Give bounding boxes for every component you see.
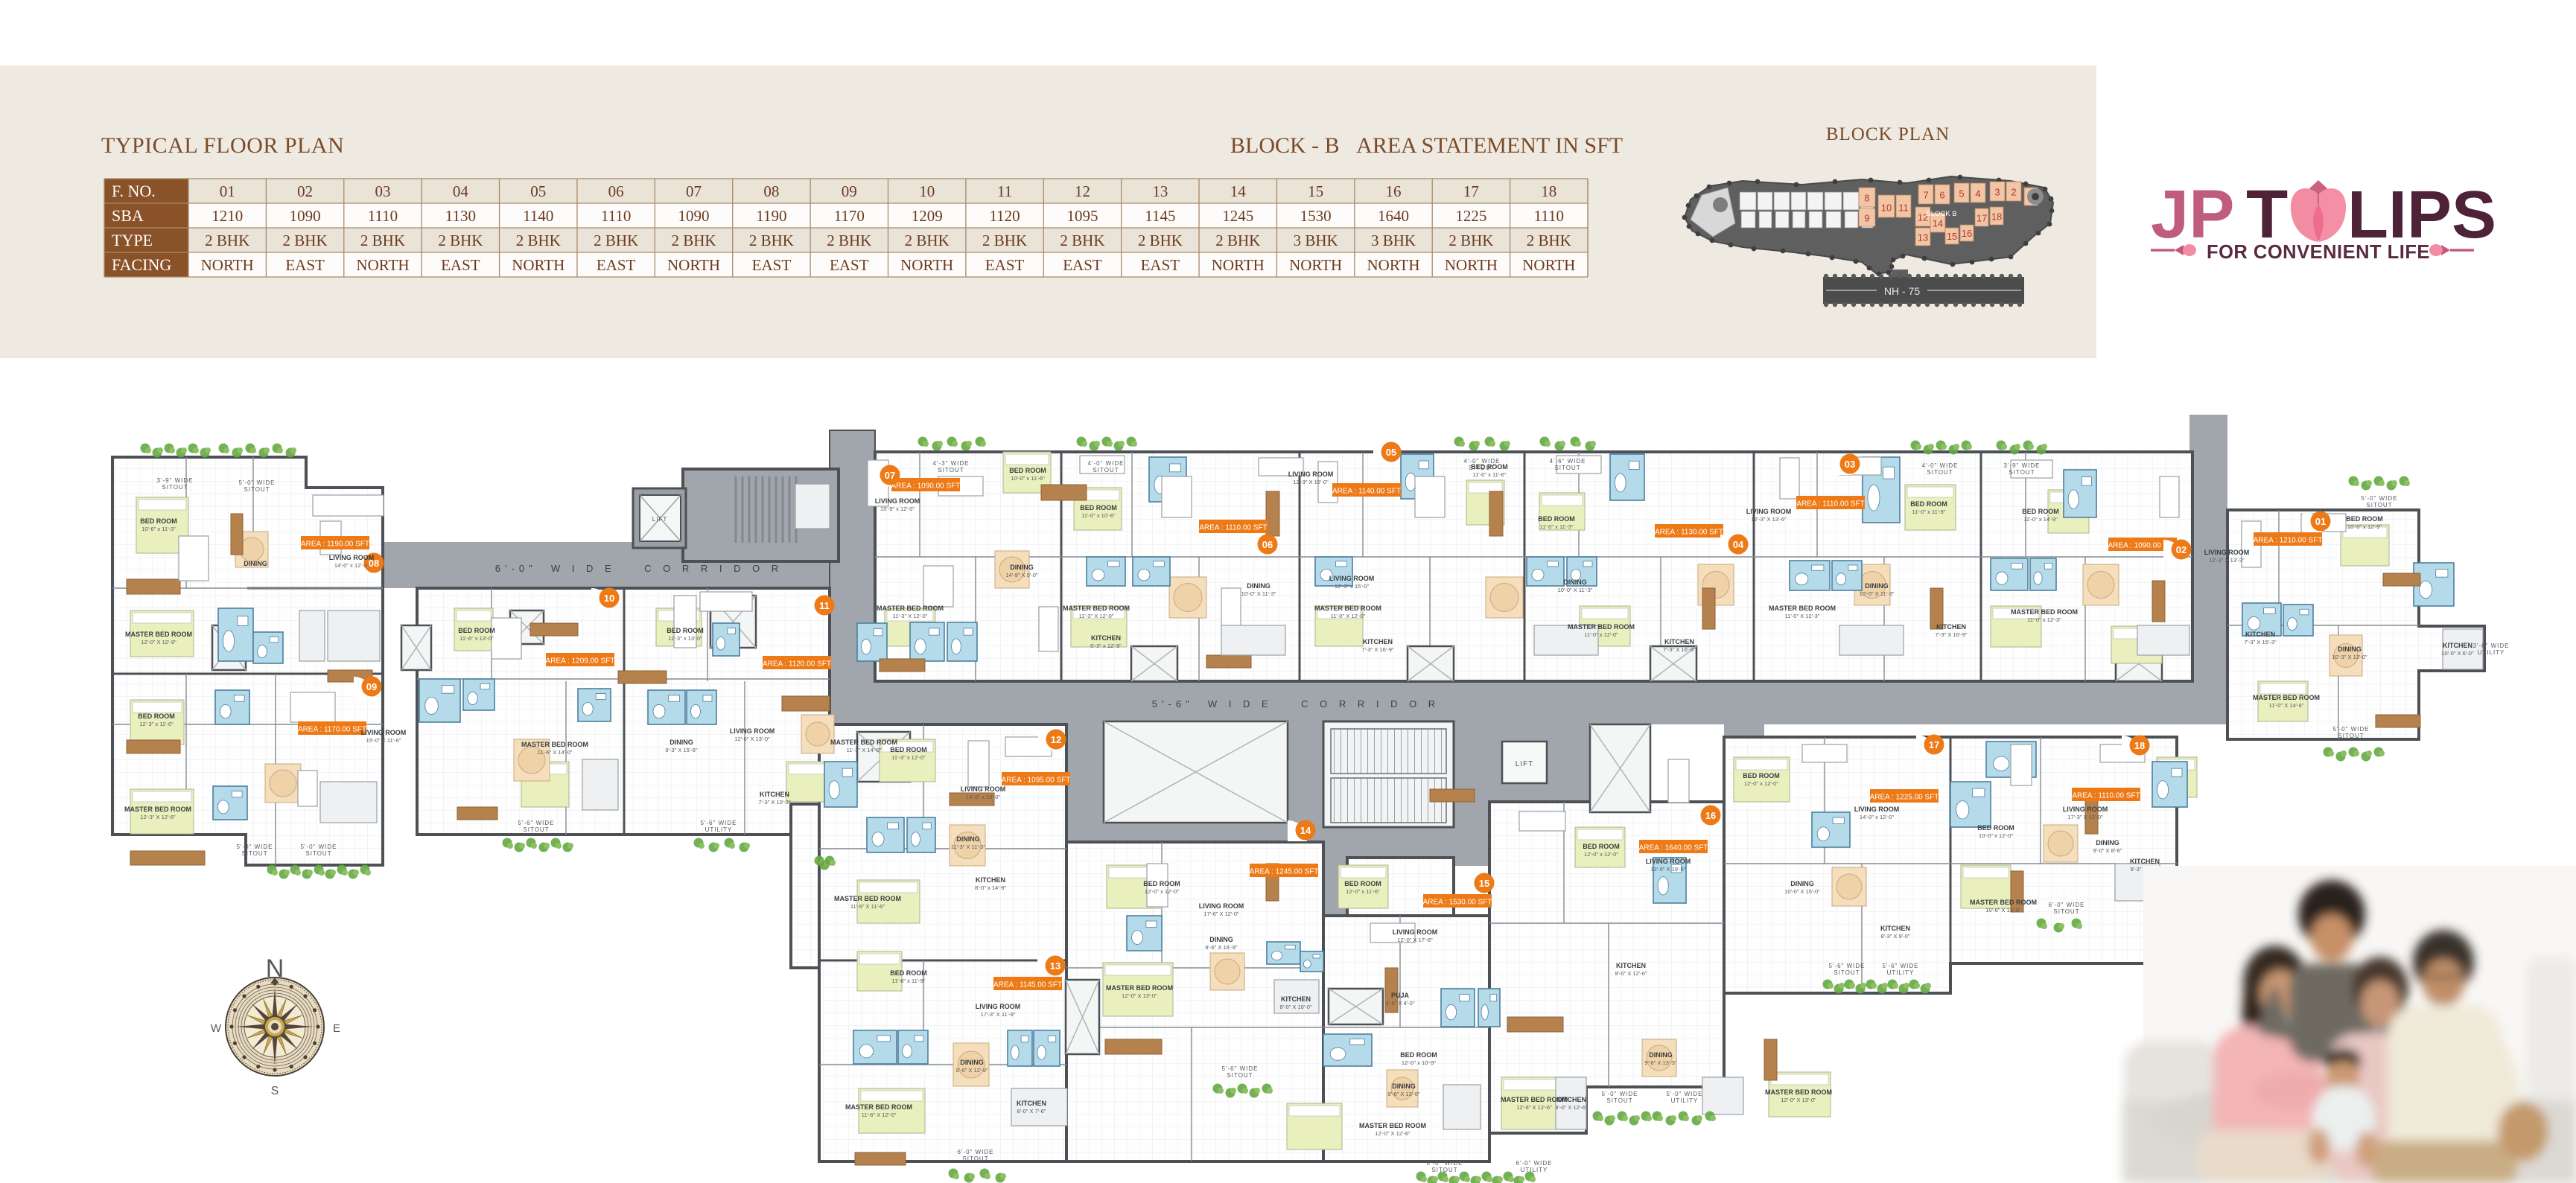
svg-text:EAST: EAST [830, 256, 869, 274]
svg-text:1190: 1190 [756, 207, 786, 225]
svg-text:LIVING ROOM: LIVING ROOM [361, 729, 407, 736]
svg-text:3'-6" WIDE: 3'-6" WIDE [2472, 642, 2509, 649]
svg-text:05: 05 [530, 182, 546, 200]
svg-text:13'-0" X 19'-6": 13'-0" X 19'-6" [1650, 866, 1686, 873]
svg-text:AREA : 1110.00 SFT: AREA : 1110.00 SFT [1199, 524, 1267, 532]
svg-text:13: 13 [1918, 232, 1928, 243]
svg-text:12: 12 [1051, 734, 1061, 745]
svg-text:11'-6" x 13'-0": 11'-6" x 13'-0" [459, 635, 494, 642]
svg-text:KITCHEN: KITCHEN [1281, 995, 1311, 1003]
svg-text:N: N [266, 954, 284, 983]
svg-text:12'-3" X 13'-3": 12'-3" X 13'-3" [2209, 557, 2245, 564]
svg-text:2 BHK: 2 BHK [1448, 232, 1493, 249]
svg-text:EAST: EAST [285, 256, 325, 274]
svg-text:LIFT: LIFT [1516, 760, 1534, 768]
svg-text:11: 11 [997, 182, 1012, 200]
svg-text:1640: 1640 [1378, 207, 1409, 225]
svg-text:15'-0" X 11'-6": 15'-0" X 11'-6" [366, 737, 401, 744]
svg-text:5'-6" WIDE: 5'-6" WIDE [1221, 1065, 1258, 1072]
svg-text:9: 9 [1864, 212, 1869, 223]
svg-text:7'-3" X 15'-3": 7'-3" X 15'-3" [2244, 639, 2277, 645]
svg-text:BED ROOM: BED ROOM [1400, 1051, 1437, 1059]
svg-text:10'-0" x 12'-9": 10'-0" x 12'-9" [2347, 523, 2382, 530]
svg-text:MASTER BED ROOM: MASTER BED ROOM [2253, 694, 2320, 701]
svg-text:06: 06 [1262, 539, 1273, 550]
svg-text:11'-0" x 14'-9": 11'-0" x 14'-9" [2023, 516, 2058, 523]
svg-text:MASTER BED ROOM: MASTER BED ROOM [125, 631, 192, 638]
svg-text:18: 18 [1991, 211, 2002, 222]
svg-text:LIVING ROOM: LIVING ROOM [1288, 471, 1334, 478]
svg-text:NORTH: NORTH [512, 256, 565, 274]
svg-text:6'-0" WIDE: 6'-0" WIDE [2048, 902, 2084, 908]
svg-text:4: 4 [1975, 188, 1980, 200]
svg-text:SITOUT: SITOUT [1227, 1072, 1253, 1079]
svg-text:12'-0" X 13'-0": 12'-0" X 13'-0" [1781, 1097, 1816, 1103]
svg-text:BED ROOM: BED ROOM [1080, 504, 1117, 511]
svg-text:TYPICAL FLOOR PLAN: TYPICAL FLOOR PLAN [101, 133, 344, 158]
svg-text:07: 07 [686, 182, 702, 200]
svg-text:LIVING ROOM: LIVING ROOM [2063, 806, 2108, 813]
svg-text:LIVING ROOM: LIVING ROOM [875, 497, 920, 505]
svg-text:10'-0" x 11'-6": 10'-0" x 11'-6" [1011, 475, 1045, 482]
svg-text:10: 10 [604, 593, 614, 604]
svg-text:02: 02 [297, 182, 313, 200]
svg-text:8'-0" X 10'-0": 8'-0" X 10'-0" [1279, 1004, 1312, 1010]
svg-text:1090: 1090 [678, 207, 710, 225]
svg-text:MASTER BED ROOM: MASTER BED ROOM [521, 741, 588, 748]
svg-text:11'-0" x 12'-0": 11'-0" x 12'-0" [1584, 631, 1618, 638]
svg-text:BED ROOM: BED ROOM [1910, 500, 1947, 508]
svg-text:BED ROOM: BED ROOM [667, 627, 704, 634]
svg-text:SITOUT: SITOUT [1431, 1167, 1457, 1173]
svg-text:9'-6" X 16'-9": 9'-6" X 16'-9" [1205, 944, 1238, 951]
svg-text:03: 03 [375, 182, 390, 200]
svg-text:2 BHK: 2 BHK [827, 232, 871, 249]
svg-text:NORTH: NORTH [900, 256, 953, 274]
svg-text:BED ROOM: BED ROOM [1977, 824, 2014, 832]
svg-text:LIVING ROOM: LIVING ROOM [1746, 508, 1792, 515]
svg-text:3 BHK: 3 BHK [1371, 232, 1416, 249]
svg-text:SITOUT: SITOUT [241, 850, 267, 857]
svg-text:1209: 1209 [912, 207, 943, 225]
svg-text:9'-3" X 15'-6": 9'-3" X 15'-6" [665, 747, 698, 753]
svg-text:11'-0" x 11'-3": 11'-0" x 11'-3" [1539, 523, 1573, 530]
svg-text:KITCHEN: KITCHEN [2443, 642, 2472, 649]
svg-text:10'-0" X 11'-3": 10'-0" X 11'-3" [1558, 587, 1593, 593]
svg-text:1110: 1110 [1534, 207, 1564, 225]
svg-text:5'-0" WIDE: 5'-0" WIDE [2361, 495, 2397, 502]
svg-text:04: 04 [453, 182, 469, 200]
svg-text:E: E [333, 1022, 340, 1035]
svg-text:NORTH: NORTH [1212, 256, 1265, 274]
svg-text:10'-6" X 13'-6": 10'-6" X 13'-6" [1985, 907, 2021, 913]
svg-text:MASTER BED ROOM: MASTER BED ROOM [2011, 608, 2078, 616]
svg-text:AREA : 1190.00 SFT: AREA : 1190.00 SFT [301, 541, 369, 549]
svg-text:MASTER BED ROOM: MASTER BED ROOM [877, 605, 944, 612]
svg-text:1130: 1130 [445, 207, 476, 225]
svg-text:11'-6" X 12'-0": 11'-6" X 12'-0" [862, 1112, 897, 1118]
svg-text:13: 13 [1050, 960, 1060, 972]
svg-text:MASTER BED ROOM: MASTER BED ROOM [1359, 1122, 1426, 1129]
svg-text:LIVING ROOM: LIVING ROOM [1393, 928, 1438, 936]
svg-text:BLOCK PLAN: BLOCK PLAN [1826, 124, 1950, 144]
svg-text:1145: 1145 [1145, 207, 1175, 225]
svg-text:11'-6" x 11'-9": 11'-6" x 11'-9" [891, 978, 925, 984]
svg-text:DINING: DINING [1649, 1051, 1673, 1059]
svg-text:LIVING ROOM: LIVING ROOM [2204, 549, 2250, 556]
svg-text:MASTER BED ROOM: MASTER BED ROOM [1970, 899, 2037, 906]
svg-text:14'-0" x 13'-0": 14'-0" x 13'-0" [966, 794, 1000, 800]
svg-text:EAST: EAST [441, 256, 480, 274]
svg-text:16: 16 [1962, 228, 1972, 239]
svg-text:DINING: DINING [956, 835, 980, 843]
svg-text:AREA : 1209.00 SFT: AREA : 1209.00 SFT [546, 657, 615, 666]
svg-text:11'-3" X 11'-3": 11'-3" X 11'-3" [951, 844, 986, 850]
svg-text:MASTER BED ROOM: MASTER BED ROOM [1314, 605, 1381, 612]
svg-text:12'-3" X 15'-0": 12'-3" X 15'-0" [1293, 479, 1329, 485]
svg-text:SITOUT: SITOUT [305, 850, 331, 857]
svg-text:SITOUT: SITOUT [2338, 733, 2364, 739]
svg-text:11'-6" X 14'-0": 11'-6" X 14'-0" [538, 749, 573, 756]
svg-text:BED ROOM: BED ROOM [1009, 467, 1046, 474]
svg-text:4'-6" WIDE: 4'-6" WIDE [1549, 458, 1586, 465]
svg-text:14: 14 [1933, 218, 1943, 229]
svg-text:SITOUT: SITOUT [244, 486, 270, 493]
svg-text:2 BHK: 2 BHK [671, 232, 716, 249]
svg-text:6'-0" WIDE: 6'-0" WIDE [1426, 1160, 1463, 1167]
svg-text:12'-6" X 12'-6": 12'-6" X 12'-6" [1516, 1104, 1552, 1111]
svg-text:2 BHK: 2 BHK [1527, 232, 1571, 249]
svg-text:16: 16 [1705, 810, 1716, 821]
svg-text:12'-0" x 12'-0": 12'-0" x 12'-0" [1145, 888, 1179, 895]
svg-text:10: 10 [919, 182, 935, 200]
svg-text:6'-0" WIDE: 6'-0" WIDE [957, 1149, 993, 1155]
svg-text:07: 07 [885, 470, 895, 481]
svg-text:03: 03 [1845, 459, 1855, 470]
svg-text:3'-6" X 4'-0": 3'-6" X 4'-0" [1385, 1000, 1414, 1007]
svg-text:F. NO.: F. NO. [112, 182, 156, 200]
svg-text:04: 04 [1733, 539, 1744, 550]
svg-text:8'-0" X 7'-6": 8'-0" X 7'-6" [1017, 1108, 1046, 1115]
svg-text:10'-0" x 12'-0": 10'-0" x 12'-0" [1979, 832, 2013, 839]
svg-text:12'-0" x 11'-6": 12'-0" x 11'-6" [1346, 888, 1380, 895]
svg-text:KITCHEN: KITCHEN [2245, 631, 2275, 638]
svg-text:5'-6" WIDE: 5'-6" WIDE [518, 820, 554, 826]
svg-text:11'-0" X 12'-3": 11'-0" X 12'-3" [1785, 613, 1820, 619]
svg-text:LIVING ROOM: LIVING ROOM [1329, 575, 1375, 582]
svg-text:EAST: EAST [1141, 256, 1180, 274]
svg-text:2 BHK: 2 BHK [205, 232, 249, 249]
svg-text:2 BHK: 2 BHK [982, 232, 1027, 249]
svg-text:AREA : 1640.00 SFT: AREA : 1640.00 SFT [1639, 844, 1708, 852]
svg-text:DINING: DINING [1865, 582, 1889, 590]
svg-text:14: 14 [1300, 825, 1311, 836]
svg-text:11'-3" x 12'-0": 11'-3" x 12'-0" [891, 754, 926, 761]
svg-text:11: 11 [1898, 203, 1909, 214]
svg-text:9'-0" X 12'-6": 9'-0" X 12'-6" [1555, 1104, 1588, 1111]
svg-text:9'-6" X 12'-9": 9'-6" X 12'-9" [955, 1067, 988, 1074]
svg-text:11'-3" x 13'-0": 11'-3" x 13'-0" [668, 635, 702, 642]
svg-text:SITOUT: SITOUT [1927, 469, 1953, 476]
svg-text:DINING: DINING [1790, 880, 1814, 887]
svg-text:4'-0" WIDE: 4'-0" WIDE [1087, 460, 1124, 467]
svg-text:AREA : 1110.00 SFT: AREA : 1110.00 SFT [2072, 792, 2140, 800]
svg-text:AREA : 1110.00 SFT: AREA : 1110.00 SFT [1796, 500, 1864, 508]
svg-text:17'-3" X 11'-9": 17'-3" X 11'-9" [981, 1011, 1016, 1018]
svg-text:DINING: DINING [1209, 936, 1233, 943]
svg-text:14'-0" x 12'-0": 14'-0" x 12'-0" [1860, 814, 1894, 820]
svg-text:MASTER BED ROOM: MASTER BED ROOM [830, 739, 897, 746]
svg-text:BED ROOM: BED ROOM [1344, 880, 1381, 887]
svg-text:LIVING ROOM: LIVING ROOM [329, 554, 375, 561]
svg-text:11: 11 [819, 600, 830, 611]
svg-text:1225: 1225 [1455, 207, 1486, 225]
svg-text:DINING: DINING [2338, 645, 2362, 653]
svg-text:01: 01 [220, 182, 235, 200]
svg-text:17: 17 [1463, 182, 1479, 200]
svg-text:5'-0" WIDE: 5'-0" WIDE [238, 479, 275, 486]
svg-text:1140: 1140 [523, 207, 553, 225]
svg-text:2 BHK: 2 BHK [594, 232, 638, 249]
svg-text:NORTH: NORTH [1289, 256, 1342, 274]
svg-text:KITCHEN: KITCHEN [1017, 1100, 1046, 1107]
svg-text:SITOUT: SITOUT [2009, 469, 2035, 476]
svg-text:BED ROOM: BED ROOM [1143, 880, 1180, 887]
svg-text:MASTER BED ROOM: MASTER BED ROOM [124, 806, 191, 813]
svg-text:DINING: DINING [960, 1059, 984, 1066]
svg-text:7'-3" X 16'-9": 7'-3" X 16'-9" [1663, 646, 1696, 653]
svg-text:DINING: DINING [2096, 839, 2119, 846]
svg-text:MASTER BED ROOM: MASTER BED ROOM [845, 1103, 912, 1111]
svg-text:DINING: DINING [1247, 582, 1270, 590]
svg-text:W: W [211, 1022, 222, 1035]
svg-text:3 BHK: 3 BHK [1294, 232, 1338, 249]
svg-text:15: 15 [1479, 878, 1489, 889]
svg-text:5: 5 [1959, 188, 1964, 200]
svg-text:FOR CONVENIENT LIFE: FOR CONVENIENT LIFE [2207, 242, 2430, 263]
svg-text:5'-0" WIDE: 5'-0" WIDE [300, 844, 337, 850]
svg-text:06: 06 [608, 182, 624, 200]
svg-text:MASTER BED ROOM: MASTER BED ROOM [1765, 1088, 1832, 1096]
svg-text:6'-0" WIDE: 6'-0" WIDE [1516, 1160, 1552, 1167]
svg-text:11'-0" x 12'-3": 11'-0" x 12'-3" [2027, 616, 2061, 623]
svg-text:KITCHEN: KITCHEN [1091, 634, 1121, 642]
svg-text:14'-0" x 12'-3": 14'-0" x 12'-3" [334, 562, 369, 569]
svg-text:14'-9" X 9'-0": 14'-9" X 9'-0" [1005, 572, 1038, 578]
svg-text:2: 2 [2011, 187, 2016, 198]
svg-text:EAST: EAST [597, 256, 636, 274]
svg-text:KITCHEN: KITCHEN [1363, 638, 1393, 645]
svg-text:17'-6" X 12'-0": 17'-6" X 12'-0" [1203, 911, 1239, 917]
svg-text:11'-0" x 10'-6": 11'-0" x 10'-6" [1081, 512, 1116, 519]
svg-text:9'-6" X 13'-0": 9'-6" X 13'-0" [1387, 1091, 1420, 1097]
svg-text:EAST: EAST [985, 256, 1025, 274]
svg-text:2 BHK: 2 BHK [905, 232, 950, 249]
svg-text:DINING: DINING [670, 739, 693, 746]
svg-text:5'-0" WIDE: 5'-0" WIDE [1601, 1091, 1638, 1097]
svg-text:01: 01 [2315, 516, 2326, 527]
svg-text:UTILITY: UTILITY [1887, 969, 1915, 976]
svg-text:09: 09 [842, 182, 857, 200]
svg-text:1245: 1245 [1222, 207, 1253, 225]
svg-text:9'-0" X 12'-6": 9'-0" X 12'-6" [1615, 970, 1647, 977]
svg-text:4'-0" WIDE: 4'-0" WIDE [1921, 462, 1958, 469]
svg-text:2 BHK: 2 BHK [360, 232, 405, 249]
svg-text:AREA : 1170.00 SFT: AREA : 1170.00 SFT [298, 726, 366, 734]
svg-text:LIFT: LIFT [652, 516, 667, 523]
svg-text:KITCHEN: KITCHEN [1556, 1096, 1586, 1103]
svg-text:11'-0" x 11'-6": 11'-0" x 11'-6" [1472, 471, 1506, 478]
svg-text:SITOUT: SITOUT [1606, 1097, 1632, 1104]
svg-text:05: 05 [1386, 447, 1396, 458]
svg-text:9'-0" X 8'-6": 9'-0" X 8'-6" [2093, 847, 2122, 854]
svg-text:5'-0" WIDE: 5'-0" WIDE [2332, 726, 2369, 733]
svg-text:BED ROOM: BED ROOM [1538, 515, 1575, 523]
svg-text:12'-0" x 12'-0": 12'-0" x 12'-0" [1584, 851, 1618, 858]
svg-text:11'-3" X 12'-0": 11'-3" X 12'-0" [1079, 613, 1114, 619]
svg-text:KITCHEN: KITCHEN [1616, 962, 1646, 969]
svg-text:AREA : 1145.00 SFT: AREA : 1145.00 SFT [993, 981, 1062, 989]
svg-text:2 BHK: 2 BHK [1138, 232, 1183, 249]
svg-text:LIVING ROOM: LIVING ROOM [1646, 858, 1691, 865]
svg-text:UTILITY: UTILITY [1671, 1097, 1699, 1104]
svg-text:SITOUT: SITOUT [1554, 465, 1580, 471]
svg-text:3'-9" WIDE: 3'-9" WIDE [2003, 462, 2040, 469]
svg-text:2 BHK: 2 BHK [283, 232, 328, 249]
svg-text:BLOCK - B AREA STATEMENT IN: BLOCK - B AREA STATEMENT IN SFT [1230, 133, 1623, 158]
svg-text:1095: 1095 [1066, 207, 1098, 225]
svg-text:2 BHK: 2 BHK [1215, 232, 1260, 249]
svg-text:12'-0" X 12'-9": 12'-0" X 12'-9" [141, 639, 176, 645]
svg-text:NORTH: NORTH [667, 256, 720, 274]
svg-text:SITOUT: SITOUT [523, 826, 549, 833]
svg-text:BED ROOM: BED ROOM [138, 712, 175, 720]
svg-text:5'-0" WIDE: 5'-0" WIDE [236, 844, 273, 850]
svg-text:12'-3" x 15'-0": 12'-3" x 15'-0" [1335, 583, 1369, 590]
svg-text:12'-3" X 12'-6": 12'-3" X 12'-6" [140, 814, 176, 820]
svg-text:1090: 1090 [290, 207, 321, 225]
svg-text:8'-3" X 9'-0": 8'-3" X 9'-0" [1880, 933, 1909, 940]
svg-text:SBA: SBA [112, 206, 144, 225]
svg-text:5'-6" WIDE: 5'-6" WIDE [700, 820, 737, 826]
svg-text:11'-9" X 11'-6": 11'-9" X 11'-6" [850, 903, 885, 910]
svg-text:LIVING ROOM: LIVING ROOM [976, 1003, 1021, 1010]
svg-text:MASTER BED ROOM: MASTER BED ROOM [1769, 605, 1836, 612]
svg-text:KITCHEN: KITCHEN [1664, 638, 1694, 645]
svg-text:SITOUT: SITOUT [938, 467, 964, 473]
svg-text:10'-0" X 15'-0": 10'-0" X 15'-0" [1784, 888, 1820, 895]
svg-text:DINING: DINING [1392, 1082, 1416, 1090]
svg-text:KITCHEN: KITCHEN [1936, 623, 1966, 631]
svg-text:KITCHEN: KITCHEN [976, 876, 1005, 884]
svg-text:2 BHK: 2 BHK [438, 232, 483, 249]
svg-text:SITOUT: SITOUT [1469, 465, 1495, 471]
svg-text:1170: 1170 [834, 207, 865, 225]
svg-text:14: 14 [1230, 182, 1247, 200]
svg-text:6'-3" x 12'-9": 6'-3" x 12'-9" [1090, 642, 1122, 649]
svg-text:12'-3" x 11'-0": 12'-3" x 11'-0" [139, 721, 174, 727]
svg-text:EAST: EAST [1063, 256, 1102, 274]
svg-text:11'-3" X 12'-0": 11'-3" X 12'-0" [893, 613, 928, 619]
svg-text:LIPS: LIPS [2347, 178, 2496, 252]
svg-text:BED ROOM: BED ROOM [890, 969, 927, 977]
svg-text:5'-0" WIDE: 5'-0" WIDE [1666, 1091, 1702, 1097]
svg-text:BED ROOM: BED ROOM [890, 746, 927, 753]
svg-text:6: 6 [1939, 190, 1944, 201]
svg-text:BED ROOM: BED ROOM [1583, 843, 1620, 850]
svg-text:AREA : 1140.00 SFT: AREA : 1140.00 SFT [1332, 488, 1401, 496]
svg-text:NORTH: NORTH [1522, 256, 1575, 274]
svg-text:DINING: DINING [1563, 578, 1587, 586]
svg-text:1120: 1120 [989, 207, 1020, 225]
svg-text:5'-6" W I D E C O R R I D: 5'-6" W I D E C O R R I D O R [1152, 698, 1440, 710]
svg-text:LIVING ROOM: LIVING ROOM [961, 785, 1006, 793]
svg-text:1110: 1110 [368, 207, 398, 225]
svg-text:KITCHEN: KITCHEN [760, 791, 789, 798]
svg-text:LIVING ROOM: LIVING ROOM [1199, 902, 1244, 910]
svg-text:5'-6" WIDE: 5'-6" WIDE [1882, 963, 1918, 969]
svg-text:1210: 1210 [212, 207, 243, 225]
svg-text:KITCHEN: KITCHEN [2130, 858, 2160, 865]
svg-text:4'-0" WIDE: 4'-0" WIDE [1463, 458, 1500, 465]
svg-text:4'-3" WIDE: 4'-3" WIDE [932, 460, 969, 467]
svg-text:11'-0" x 11'-9": 11'-0" x 11'-9" [1912, 508, 1945, 515]
svg-text:12'-0" X 17'-6": 12'-0" X 17'-6" [1397, 937, 1433, 943]
svg-text:NORTH: NORTH [201, 256, 254, 274]
svg-text:DINING: DINING [244, 560, 267, 567]
svg-text:2 BHK: 2 BHK [516, 232, 561, 249]
svg-text:15: 15 [1947, 231, 1957, 242]
svg-text:AREA : 1095.00 SFT: AREA : 1095.00 SFT [1002, 777, 1071, 785]
svg-text:NORTH: NORTH [1367, 256, 1419, 274]
svg-text:MASTER BED ROOM: MASTER BED ROOM [1106, 984, 1173, 992]
svg-text:UTILITY: UTILITY [705, 826, 733, 833]
svg-text:SITOUT: SITOUT [1834, 969, 1860, 976]
svg-text:MASTER BED ROOM: MASTER BED ROOM [1568, 623, 1635, 631]
svg-text:SITOUT: SITOUT [2053, 908, 2079, 915]
svg-text:LIVING ROOM: LIVING ROOM [1854, 806, 1900, 813]
svg-text:DINING: DINING [1010, 564, 1034, 571]
svg-text:8: 8 [1864, 193, 1869, 204]
svg-text:3'-9" WIDE: 3'-9" WIDE [156, 477, 193, 484]
svg-text:11'-0" X 12'-0": 11'-0" X 12'-0" [1331, 613, 1366, 619]
svg-text:BED ROOM: BED ROOM [458, 627, 495, 634]
svg-text:AREA : 1225.00 SFT: AREA : 1225.00 SFT [1870, 794, 1939, 802]
svg-text:6'-0" W I D E C O R R I D: 6'-0" W I D E C O R R I D O R [495, 563, 783, 574]
svg-text:SITOUT: SITOUT [1093, 467, 1119, 473]
svg-text:18: 18 [1541, 182, 1556, 200]
svg-text:BLOCK B: BLOCK B [1926, 210, 1956, 218]
svg-text:10'-0" X 11'-3": 10'-0" X 11'-3" [1860, 590, 1895, 597]
svg-text:BED ROOM: BED ROOM [2022, 508, 2059, 515]
svg-text:NH - 75: NH - 75 [1884, 285, 1920, 297]
svg-text:PUJA: PUJA [1391, 992, 1410, 999]
svg-text:10'-3" X 13'-0": 10'-3" X 13'-0" [2332, 654, 2367, 660]
svg-text:SITOUT: SITOUT [962, 1155, 988, 1162]
svg-text:KITCHEN: KITCHEN [1880, 925, 1910, 932]
svg-text:EAST: EAST [752, 256, 792, 274]
svg-text:3: 3 [1994, 187, 2000, 198]
svg-text:AREA : 1130.00 SFT: AREA : 1130.00 SFT [1655, 529, 1723, 537]
svg-text:18: 18 [2134, 740, 2145, 751]
svg-text:17'-3" X 12'-0": 17'-3" X 12'-0" [2067, 814, 2103, 820]
svg-text:S: S [271, 1085, 279, 1097]
svg-text:AREA : 1245.00 SFT: AREA : 1245.00 SFT [1250, 868, 1319, 876]
svg-text:9'-6" X 13'-3": 9'-6" X 13'-3" [1644, 1059, 1677, 1066]
svg-text:12'-0" X 13'-0": 12'-0" X 13'-0" [1122, 992, 1157, 999]
svg-text:08: 08 [763, 182, 779, 200]
svg-text:12'-0" X 12'-6": 12'-0" X 12'-6" [1375, 1130, 1411, 1137]
